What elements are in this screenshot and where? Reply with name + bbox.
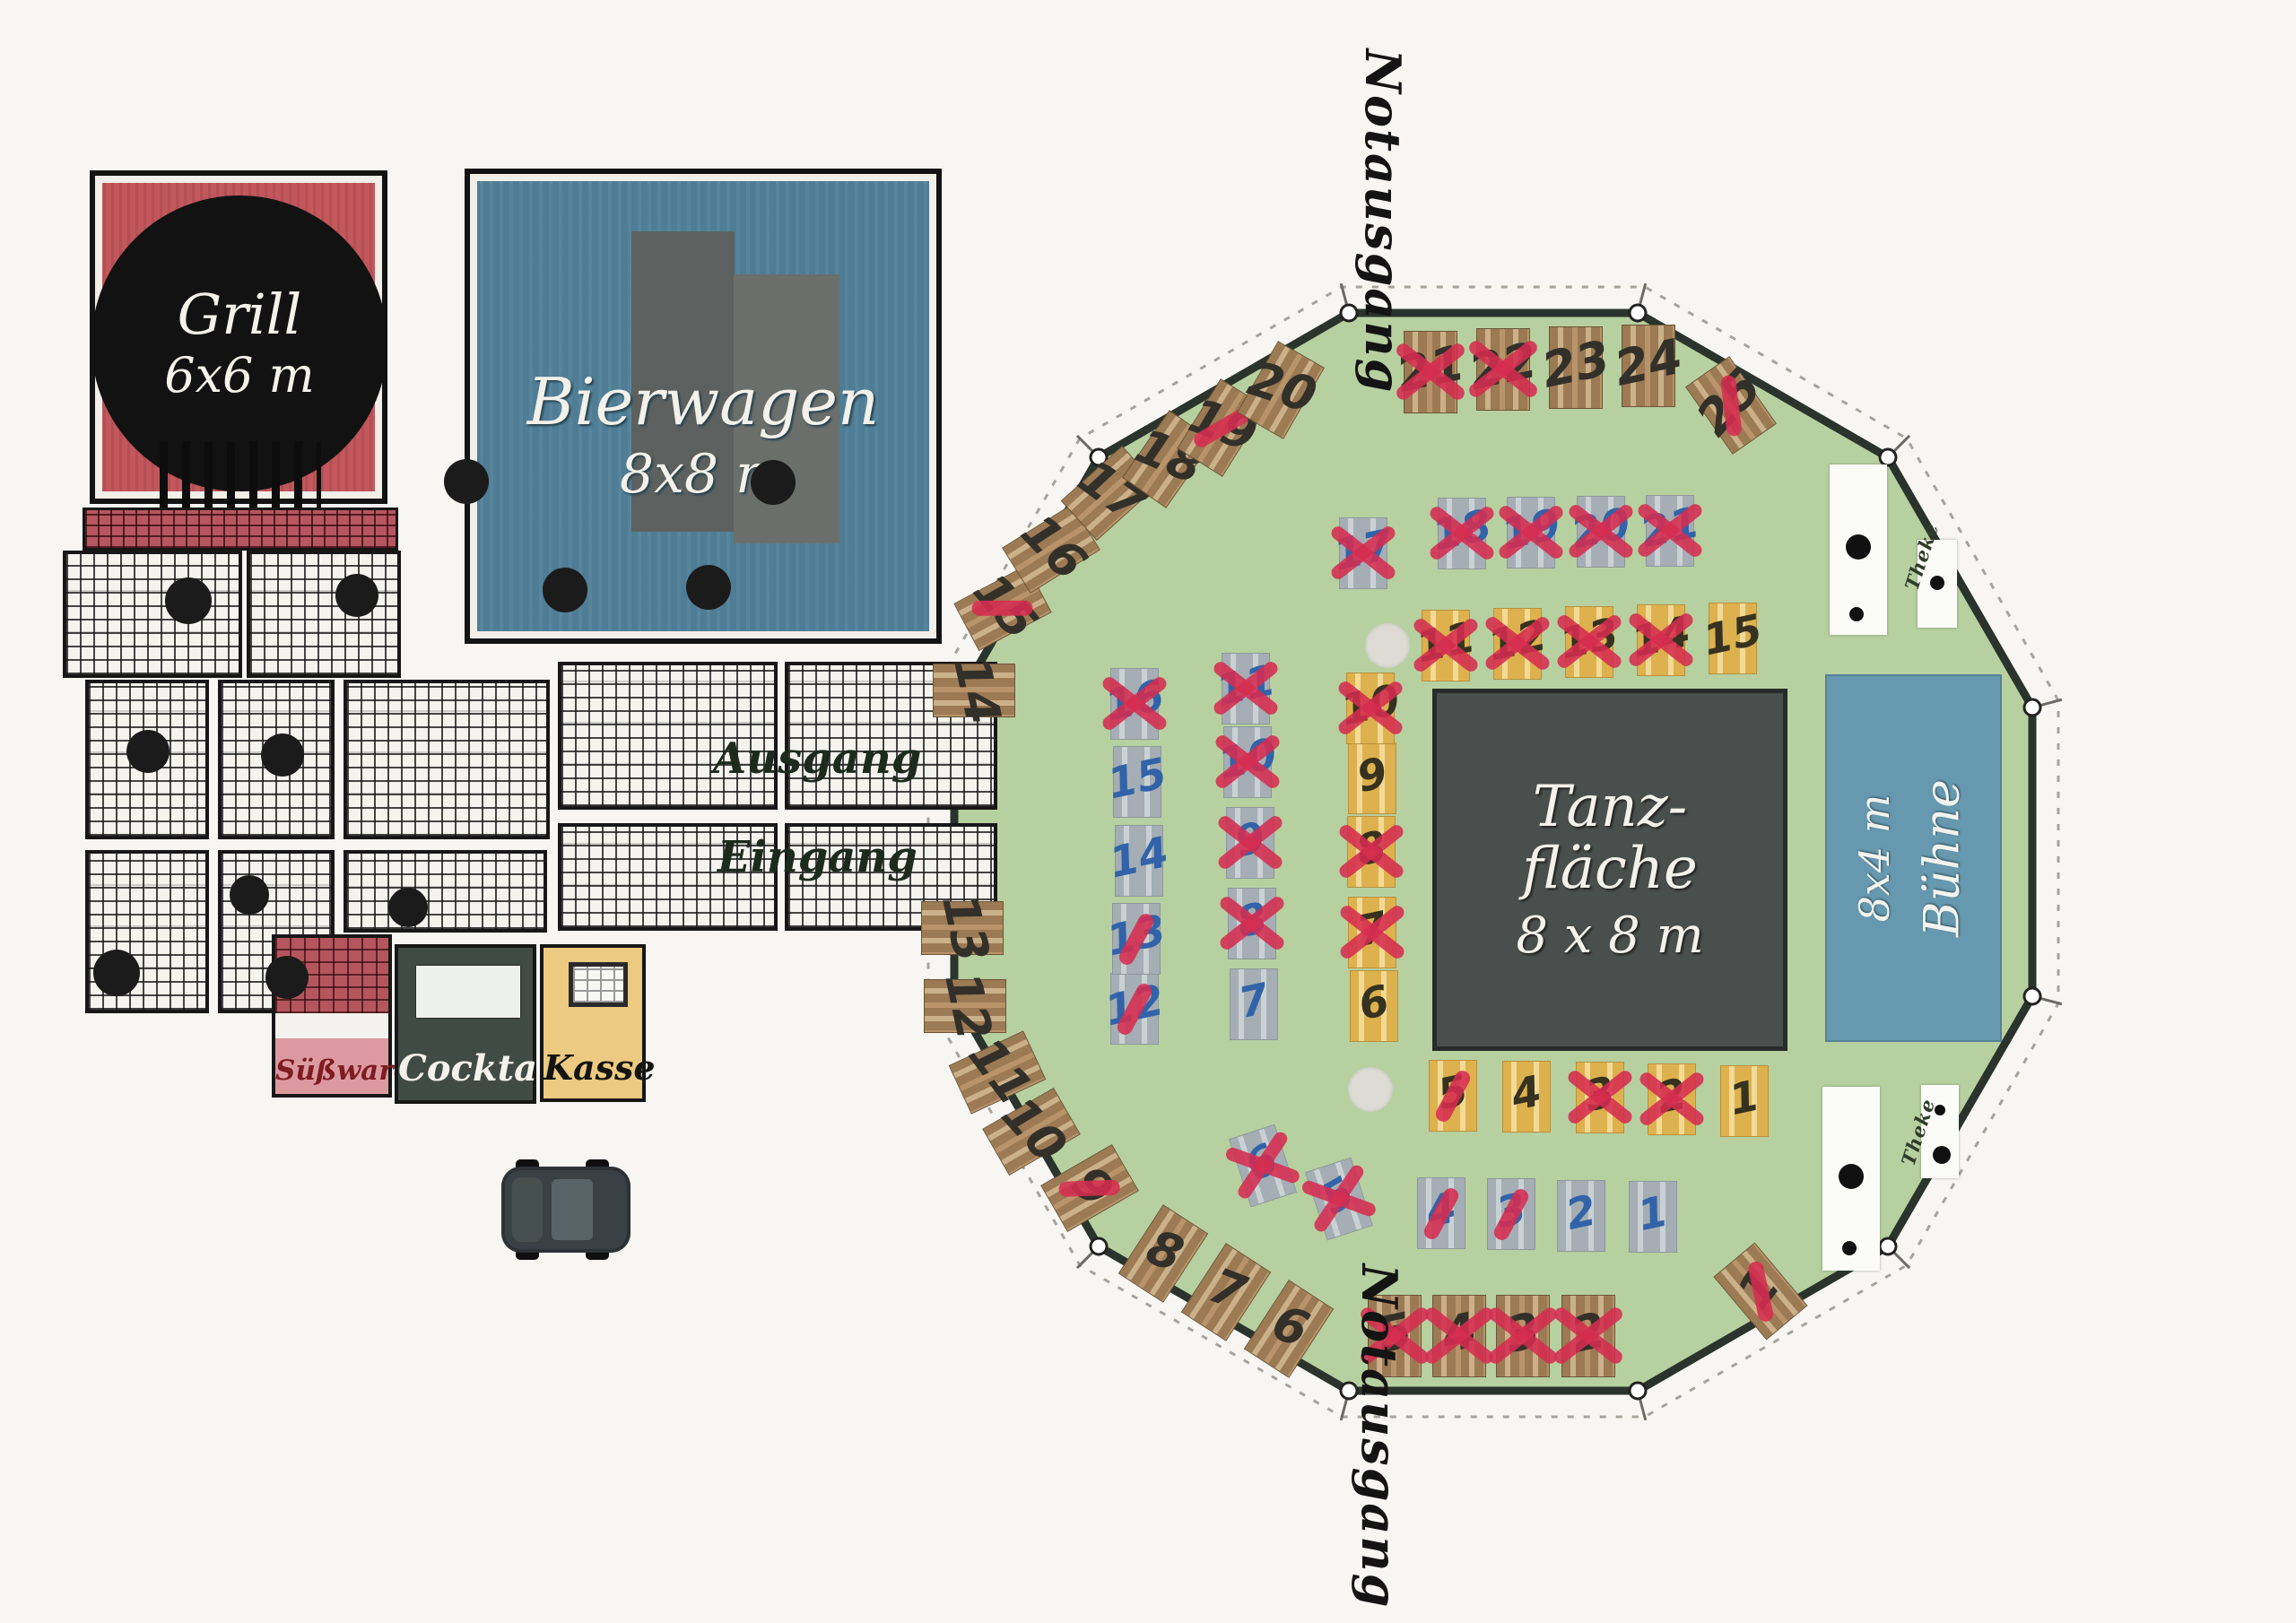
table-inner-1: 1	[1629, 1181, 1677, 1253]
table-dance-4: 4	[1502, 1061, 1551, 1133]
bar-stool-dot-icon	[1842, 1241, 1857, 1255]
cocktail-stand-label: Cocktails	[398, 1047, 533, 1089]
beer-wagon-label: Bierwagen	[470, 364, 936, 439]
bar-stool-dot-icon	[1839, 1164, 1864, 1189]
table-dance-14: 14	[1637, 604, 1685, 676]
table-inner-7: 7	[1230, 968, 1278, 1040]
table-inner-18: 18	[1438, 498, 1486, 569]
tree-dot-icon	[543, 568, 587, 612]
tent-vertex-marker	[2024, 699, 2040, 716]
table-dance-1: 1	[1720, 1065, 1769, 1137]
table-inner-13: 13	[1112, 903, 1161, 975]
cocktail-stand-window	[416, 966, 520, 1018]
entrance-label: Eingang	[717, 832, 918, 882]
tree-dot-icon	[686, 565, 731, 610]
emergency-exit-label-top: Notausgang	[1354, 15, 1412, 428]
sweets-stand-label: Süßwaren	[275, 1055, 388, 1087]
tree-dot-icon	[335, 574, 378, 617]
table-inner-19: 19	[1507, 497, 1555, 568]
grill-building: Grill 6x6 m	[90, 170, 387, 504]
table-inner-11: 11	[1222, 653, 1270, 725]
table-ring-12: 12	[924, 979, 1006, 1033]
bar-stool-dot-icon	[1846, 534, 1871, 560]
table-ring-3: 3	[1496, 1295, 1550, 1377]
car-hood	[512, 1177, 543, 1242]
table-dance-15: 15	[1709, 603, 1757, 674]
table-dance-9: 9	[1348, 742, 1396, 814]
table-ring-14: 14	[933, 664, 1015, 717]
beer-wagon-size-label: 8x8 m	[470, 443, 936, 506]
tent-vertex-marker	[2024, 988, 2040, 1004]
car-roof	[552, 1179, 593, 1240]
dance-floor-size-label: 8 x 8 m	[1516, 909, 1703, 963]
table-dance-7: 7	[1348, 897, 1396, 968]
table-ring-23: 23	[1549, 326, 1603, 409]
table-inner-16: 16	[1110, 668, 1159, 740]
table-inner-15: 15	[1113, 746, 1161, 818]
cash-desk-stand: Kasse	[540, 944, 646, 1102]
table-dance-3: 3	[1576, 1062, 1624, 1133]
table-ring-4: 4	[1432, 1295, 1486, 1377]
bench-block	[344, 680, 550, 839]
table-inner-20: 20	[1577, 496, 1625, 568]
table-dance-6: 6	[1350, 970, 1398, 1042]
stage-label: Bühne	[1914, 779, 1970, 937]
tree-dot-icon	[751, 460, 796, 505]
dance-floor: Tanz- fläche 8 x 8 m	[1432, 689, 1787, 1051]
bench-block	[63, 551, 242, 678]
tree-dot-icon	[93, 950, 140, 996]
table-inner-12: 12	[1110, 973, 1159, 1045]
dance-floor-label-line1: Tanz-	[1533, 777, 1687, 838]
cash-desk-window	[569, 962, 628, 1007]
bar-stool-dot-icon	[1930, 576, 1944, 590]
table-ring-24: 24	[1622, 325, 1675, 407]
table-inner-8: 8	[1228, 888, 1276, 959]
table-inner-4: 4	[1417, 1177, 1465, 1249]
tent-vertex-marker	[1880, 1238, 1896, 1254]
table-dance-5: 5	[1429, 1060, 1477, 1132]
bar-counter	[1830, 464, 1887, 635]
table-inner-10: 10	[1223, 726, 1272, 798]
bar-stool-dot-icon	[1933, 1146, 1951, 1164]
tree-dot-icon	[388, 888, 428, 927]
tree-dot-icon	[265, 956, 309, 999]
table-dance-11: 11	[1422, 610, 1470, 681]
table-ring-21: 21	[1404, 331, 1457, 413]
table-inner-9: 9	[1226, 807, 1274, 879]
bench-block	[247, 551, 401, 678]
emergency-exit-label-bottom: Notausgang	[1351, 1230, 1408, 1623]
tree-dot-icon	[126, 730, 170, 773]
table-dance-10: 10	[1346, 673, 1395, 744]
grill-bench-row	[83, 508, 398, 551]
tree-dot-icon	[261, 733, 304, 777]
tent-center-pole-icon	[1348, 1067, 1393, 1112]
tent-center-pole-icon	[1365, 623, 1410, 668]
grill-size-label: 6x6 m	[164, 351, 315, 402]
bar-stool-dot-icon	[1849, 607, 1864, 621]
table-dance-13: 13	[1565, 606, 1613, 678]
bench-block	[344, 850, 547, 933]
bar-counter	[1822, 1087, 1880, 1271]
grill-label: Grill	[178, 285, 302, 343]
car-icon	[500, 1159, 632, 1260]
table-dance-8: 8	[1347, 816, 1396, 888]
tent-vertex-marker	[1630, 305, 1646, 321]
cocktail-stand: Cocktails	[395, 944, 536, 1104]
table-ring-22: 22	[1476, 328, 1530, 411]
exit-label: Ausgang	[713, 733, 921, 784]
cash-desk-label: Kasse	[544, 1047, 642, 1088]
tree-dot-icon	[165, 577, 212, 624]
tent-vertex-marker	[1880, 449, 1896, 465]
table-inner-14: 14	[1115, 825, 1163, 897]
table-inner-17: 17	[1339, 517, 1387, 589]
table-ring-2: 2	[1561, 1295, 1615, 1377]
dance-floor-label-line2: fläche	[1522, 838, 1698, 900]
tree-dot-icon	[444, 459, 489, 504]
table-dance-2: 2	[1648, 1063, 1696, 1135]
table-inner-21: 21	[1646, 495, 1694, 567]
stage: Bühne 8x4 m	[1825, 674, 2002, 1042]
tent-vertex-marker	[1091, 1238, 1107, 1254]
table-inner-3: 3	[1487, 1178, 1535, 1250]
table-dance-12: 12	[1493, 608, 1542, 680]
tree-dot-icon	[230, 875, 269, 915]
table-inner-2: 2	[1557, 1180, 1605, 1252]
tent-vertex-marker	[1630, 1383, 1646, 1399]
table-ring-13: 13	[921, 901, 1004, 955]
festival-site-plan: Tanz- fläche 8 x 8 m Bühne 8x4 m Theke T…	[0, 0, 2296, 1623]
stage-size-label: 8x4 m	[1850, 794, 1899, 923]
